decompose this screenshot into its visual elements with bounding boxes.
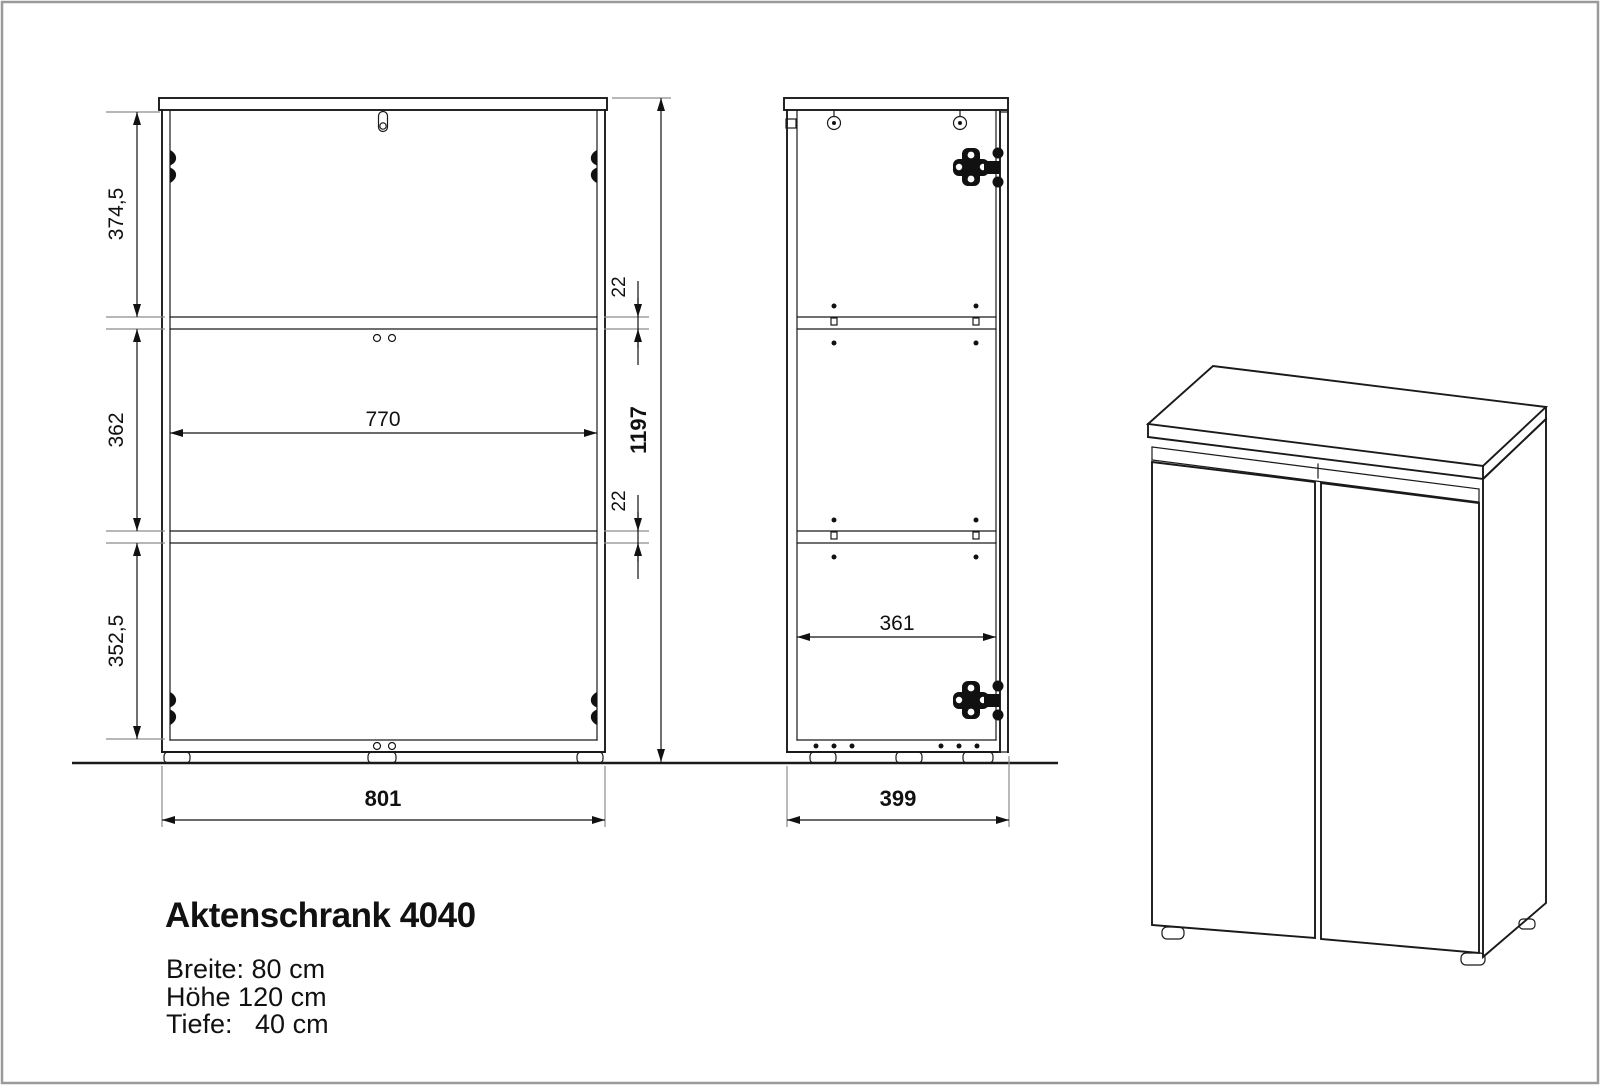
dim-overall-width: 801 [162,766,605,827]
hinge-assembly-bottom [953,681,1004,721]
persp-foot-right [1461,953,1485,965]
title-block: Aktenschrank 4040 Breite: 80 cm Höhe 120… [165,896,476,1039]
persp-top-face [1148,366,1546,466]
spec-depth: Tiefe: 40 cm [166,1009,329,1039]
technical-drawing: 374,5 362 352,5 770 22 [0,0,1600,1085]
dim-inner-depth: 361 [797,612,996,637]
front-foot-right [577,752,603,763]
persp-foot-left [1162,927,1184,939]
shelf-hole [374,335,381,342]
side-cabinet-outline [784,98,1008,763]
front-top-panel [159,98,607,110]
dim-label-inner-depth: 361 [879,612,914,635]
side-foot-right [963,752,993,763]
dim-shelf-upper: 22 [604,276,649,365]
side-top-panel [784,98,1008,110]
hinge-assembly-top [953,148,1004,188]
dim-label-overall-depth: 399 [880,786,917,811]
shelf-hole [374,743,381,750]
dim-overall-depth: 399 [787,756,1009,827]
front-view: 374,5 362 352,5 770 22 [105,98,671,827]
side-dimensions: 361 399 [787,612,1009,827]
perspective-view [1148,366,1546,965]
side-foot-left [810,752,836,763]
persp-left-door [1152,462,1315,938]
dim-label-overall-width: 801 [365,786,402,811]
dim-label-overall-height: 1197 [626,406,651,454]
dim-label-shelf-upper: 22 [609,276,630,297]
drawing-title: Aktenschrank 4040 [165,896,476,935]
spec-width: Breite: 80 cm [166,954,325,984]
persp-side-face [1483,419,1546,957]
drawing-sheet: 374,5 362 352,5 770 22 [0,0,1600,1085]
dim-inner-width: 770 [170,408,597,433]
dim-label-section-bottom: 352,5 [105,615,128,668]
dim-label-section-middle: 362 [105,412,128,447]
spec-height: Höhe 120 cm [166,982,327,1012]
front-dimensions: 374,5 362 352,5 770 22 [105,98,671,827]
shelf-hole [389,743,396,750]
side-fittings [786,110,1004,749]
shelf-hole [389,335,396,342]
side-view: 361 399 [784,98,1009,827]
dim-label-inner-width: 770 [365,408,400,431]
keyhole-icon [379,112,388,132]
dim-overall-height: 1197 [612,98,671,762]
dim-label-section-top: 374,5 [105,188,128,241]
front-foot-left [164,752,190,763]
persp-right-door [1321,483,1479,953]
front-foot-center [368,752,396,763]
dim-shelf-lower: 22 [604,490,649,579]
dim-section-stack: 374,5 362 352,5 [105,112,165,739]
side-foot-center [896,752,922,763]
dim-label-shelf-lower: 22 [609,490,630,511]
